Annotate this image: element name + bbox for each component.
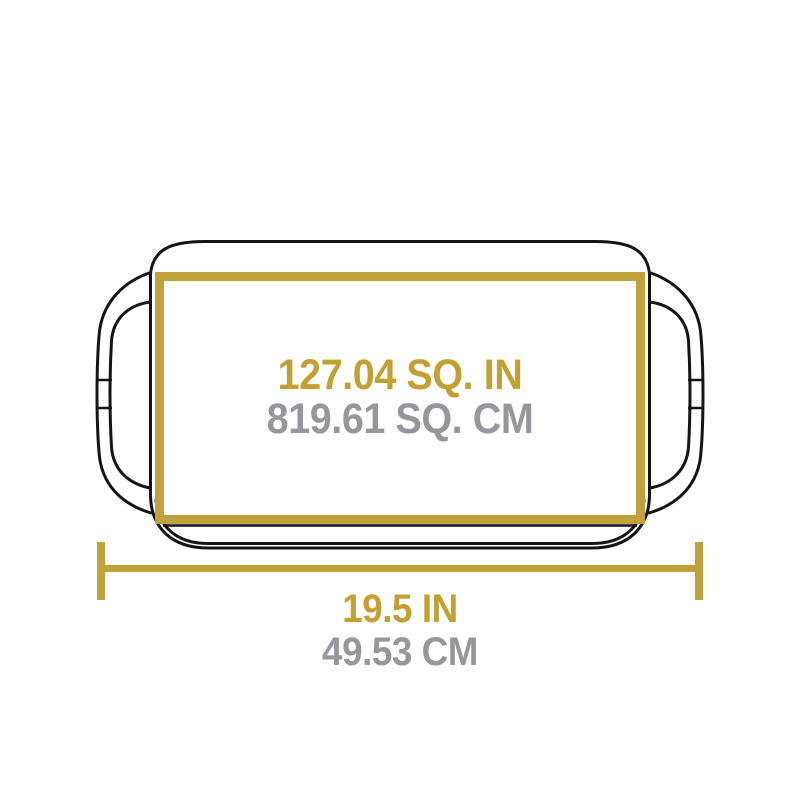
width-imperial-label: 19.5 IN [32, 589, 768, 629]
width-metric-label: 49.53 CM [32, 632, 768, 672]
surface-area-metric-label: 819.61 SQ. CM [32, 398, 768, 441]
dimension-bar [97, 565, 703, 572]
surface-area-imperial-label: 127.04 SQ. IN [32, 354, 768, 397]
product-dimension-diagram: 127.04 SQ. IN 819.61 SQ. CM 19.5 IN 49.5… [0, 0, 800, 799]
